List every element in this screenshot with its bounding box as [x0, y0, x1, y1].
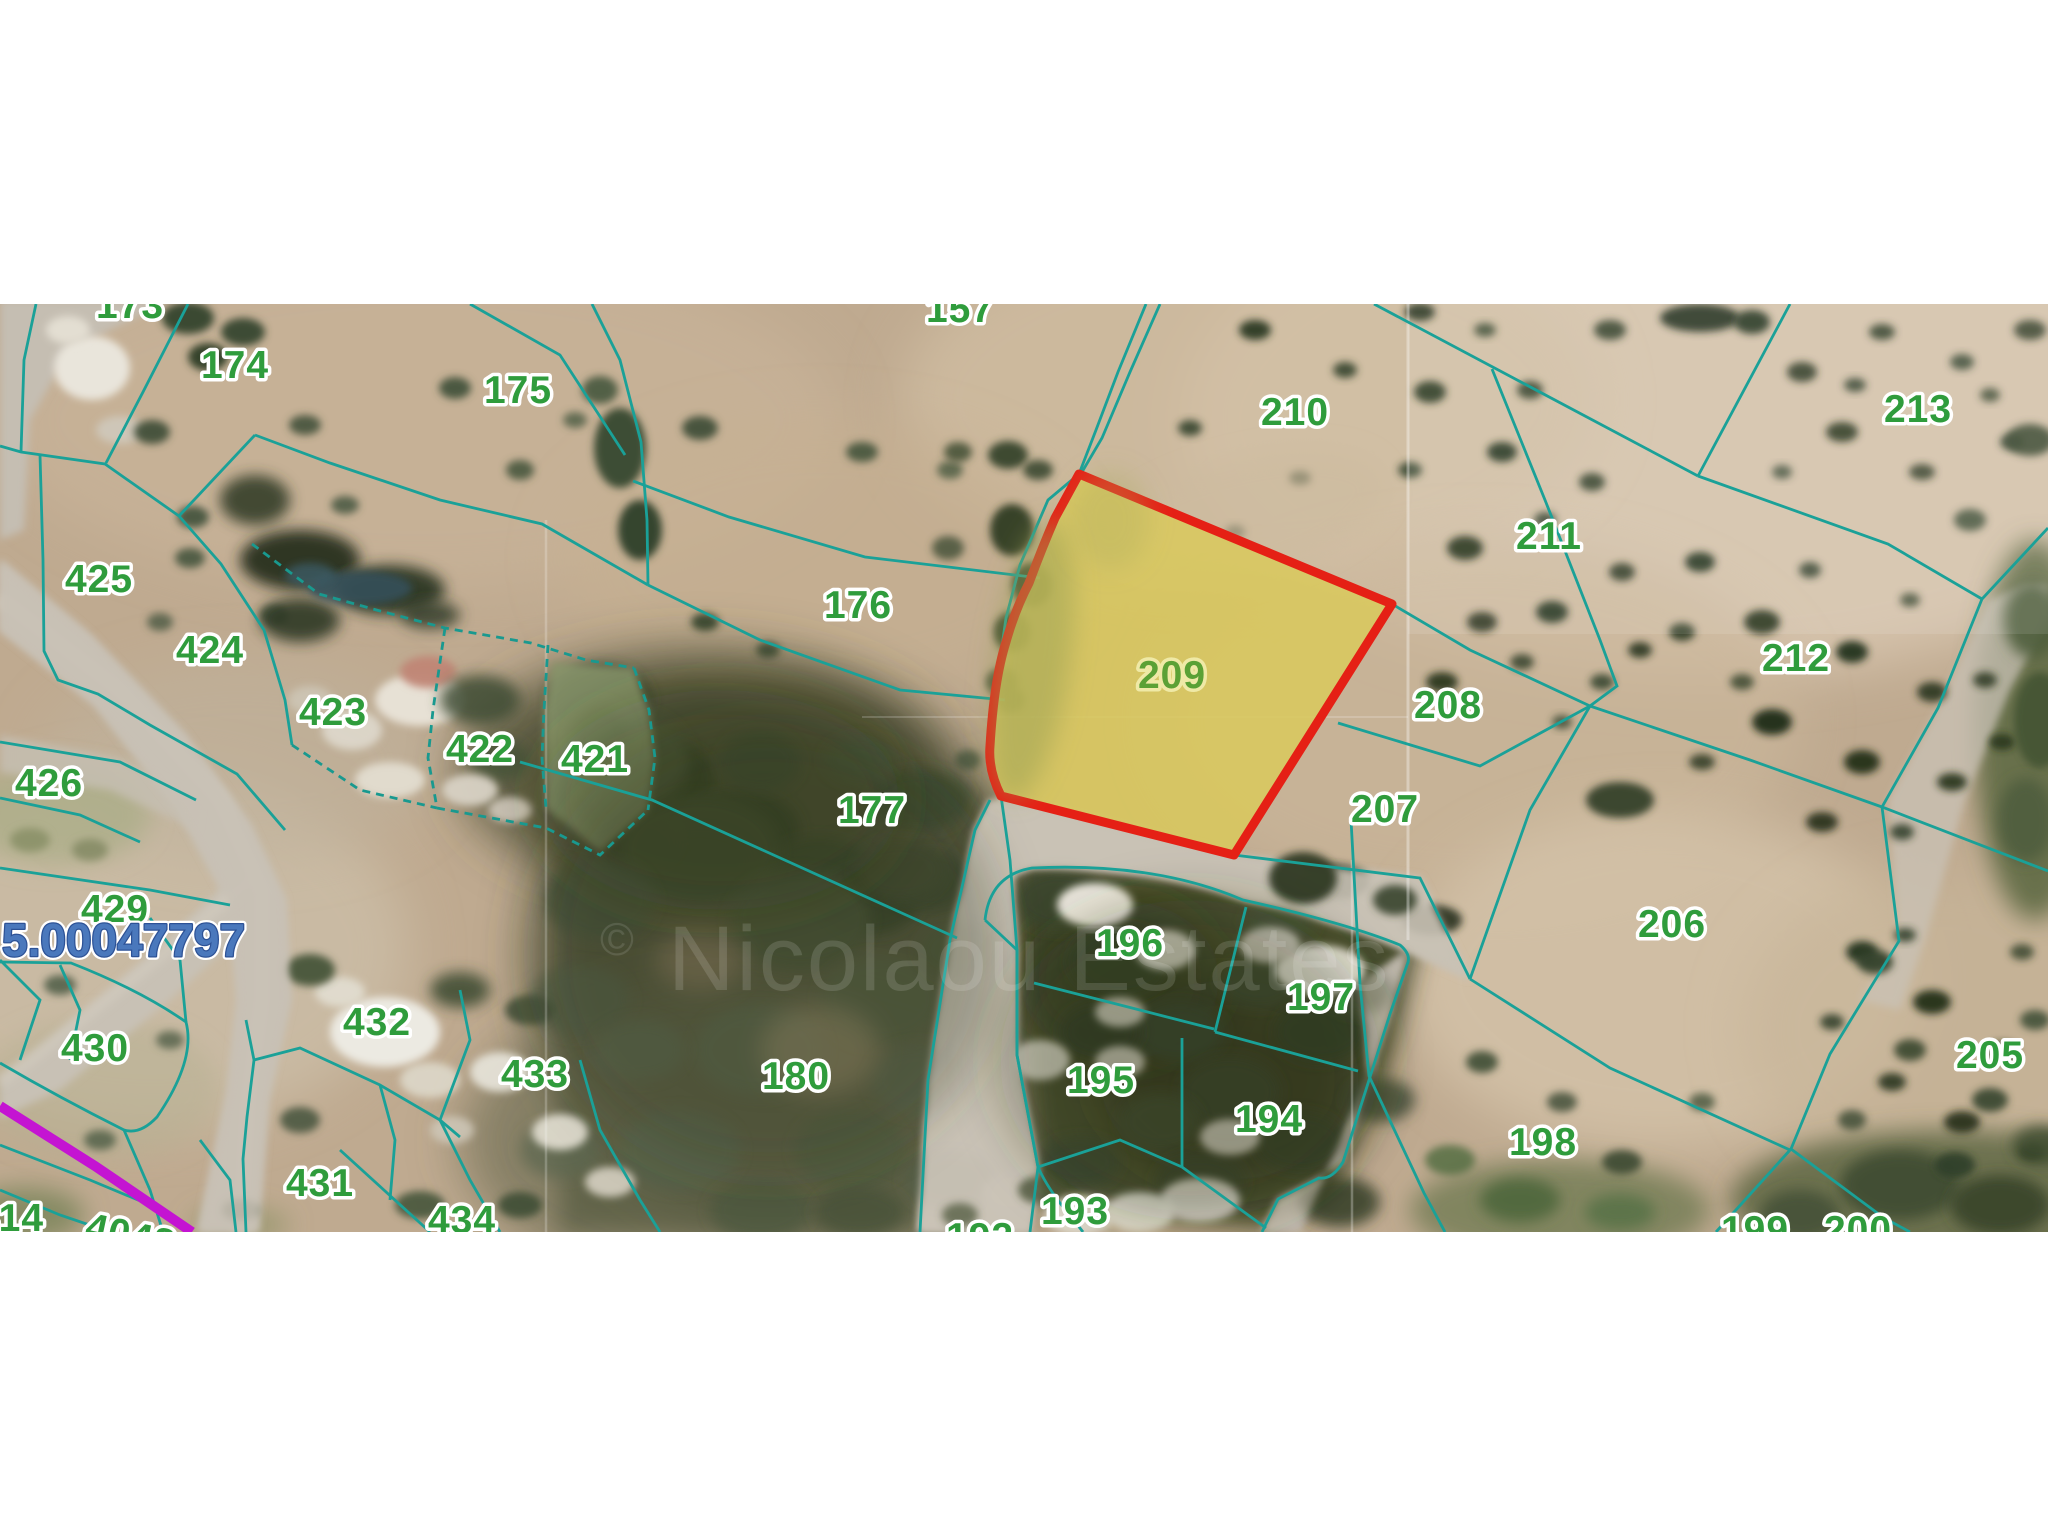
- svg-text:209: 209: [1138, 654, 1206, 697]
- svg-text:206: 206: [1638, 903, 1706, 946]
- svg-text:421: 421: [561, 738, 629, 781]
- svg-text:196: 196: [1096, 922, 1164, 965]
- svg-text:424: 424: [176, 629, 244, 672]
- svg-text:194: 194: [1235, 1098, 1303, 1141]
- svg-text:198: 198: [1509, 1121, 1577, 1164]
- svg-text:175: 175: [484, 369, 552, 412]
- svg-text:177: 177: [838, 789, 906, 832]
- svg-text:176: 176: [824, 584, 892, 627]
- svg-text:Nicolaou Estates: Nicolaou Estates: [668, 908, 1390, 1010]
- svg-text:433: 433: [501, 1053, 569, 1096]
- svg-text:197: 197: [1287, 976, 1355, 1019]
- svg-text:195: 195: [1067, 1059, 1135, 1102]
- svg-text:423: 423: [299, 691, 367, 734]
- svg-text:5.00047797: 5.00047797: [2, 914, 245, 966]
- svg-text:211: 211: [1516, 515, 1582, 558]
- svg-text:180: 180: [762, 1055, 830, 1098]
- svg-text:212: 212: [1762, 637, 1830, 680]
- svg-text:431: 431: [286, 1162, 354, 1205]
- svg-text:213: 213: [1884, 388, 1952, 431]
- svg-text:207: 207: [1351, 788, 1419, 831]
- svg-text:208: 208: [1414, 684, 1482, 727]
- svg-text:©: ©: [600, 913, 634, 965]
- svg-text:205: 205: [1956, 1034, 2024, 1077]
- svg-text:430: 430: [61, 1027, 129, 1070]
- svg-text:426: 426: [15, 762, 83, 805]
- svg-text:210: 210: [1261, 391, 1329, 434]
- svg-text:432: 432: [343, 1001, 411, 1044]
- svg-text:422: 422: [446, 728, 514, 771]
- svg-text:174: 174: [201, 344, 269, 387]
- svg-text:425: 425: [65, 558, 133, 601]
- svg-text:193: 193: [1041, 1190, 1109, 1233]
